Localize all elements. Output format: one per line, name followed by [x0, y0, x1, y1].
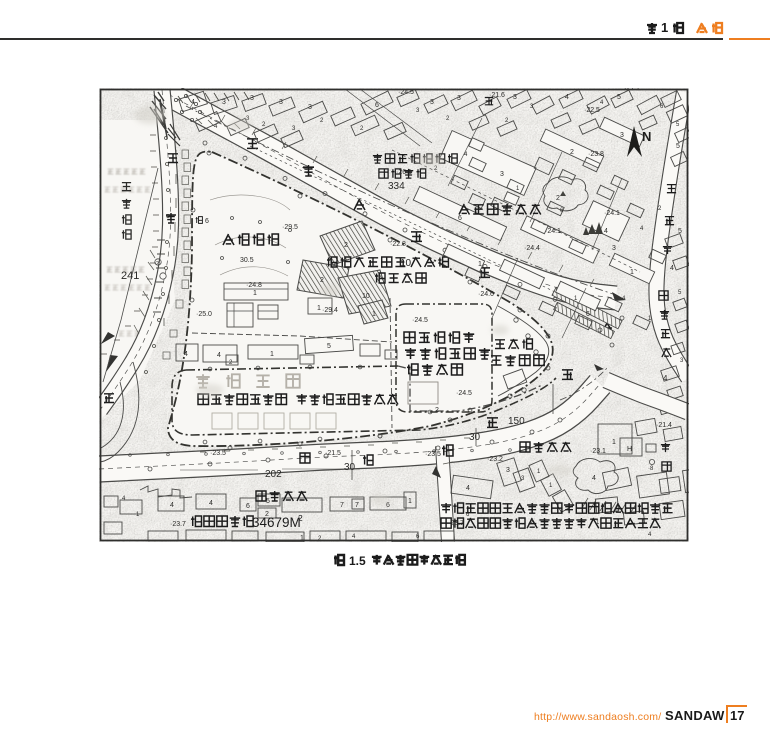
svg-text:H: H: [627, 446, 632, 453]
svg-text:3: 3: [513, 94, 517, 101]
svg-text:202: 202: [265, 469, 282, 480]
svg-text:5: 5: [617, 94, 621, 101]
svg-text:·24.5: ·24.5: [412, 317, 428, 324]
svg-text:7: 7: [340, 502, 344, 509]
svg-text:4: 4: [690, 482, 694, 488]
svg-text:3: 3: [308, 104, 312, 111]
svg-text:·23.8: ·23.8: [588, 151, 604, 158]
svg-text:4: 4: [663, 374, 668, 383]
svg-text:7: 7: [355, 502, 359, 509]
svg-text:6: 6: [458, 215, 462, 222]
svg-text:4: 4: [670, 265, 674, 272]
svg-text:3: 3: [500, 171, 504, 178]
svg-text:6: 6: [586, 311, 590, 318]
svg-text:1: 1: [372, 311, 376, 318]
svg-text:5: 5: [678, 228, 682, 235]
svg-text:·24.1: ·24.1: [604, 210, 620, 217]
svg-text:3: 3: [430, 99, 434, 106]
svg-text:334: 334: [388, 181, 405, 192]
svg-text:4: 4: [592, 475, 596, 482]
svg-text:·23.7: ·23.7: [448, 520, 464, 527]
svg-text:·23.1: ·23.1: [590, 448, 606, 455]
svg-text:·26.1: ·26.1: [396, 169, 412, 176]
svg-text:·25.0: ·25.0: [196, 311, 212, 318]
svg-text:·29.4: ·29.4: [322, 307, 338, 314]
svg-text:4: 4: [604, 228, 608, 235]
svg-text:·21.1: ·21.1: [624, 85, 640, 92]
svg-text:·24.6: ·24.6: [478, 291, 494, 298]
svg-text:241: 241: [121, 270, 139, 282]
svg-text:·23.5: ·23.5: [210, 450, 226, 457]
svg-text:2: 2: [298, 513, 303, 523]
svg-text:·24.1: ·24.1: [545, 228, 561, 235]
svg-text:2: 2: [344, 242, 348, 249]
svg-text:30.5: 30.5: [240, 257, 254, 264]
svg-text:1: 1: [612, 439, 616, 446]
svg-text:4: 4: [191, 99, 195, 106]
svg-text:1: 1: [317, 305, 321, 312]
svg-text:3: 3: [222, 99, 226, 106]
svg-text:·29.5: ·29.5: [282, 224, 298, 231]
svg-text:·21.5: ·21.5: [325, 450, 341, 457]
svg-text:5: 5: [327, 343, 331, 350]
svg-text:4: 4: [209, 500, 213, 507]
svg-text:3: 3: [620, 132, 624, 139]
svg-text:1: 1: [270, 351, 274, 358]
svg-text:·24.5: ·24.5: [456, 390, 472, 397]
svg-text:·23.2: ·23.2: [487, 456, 503, 463]
svg-text:2: 2: [435, 407, 439, 414]
svg-text:5: 5: [676, 143, 680, 150]
svg-text:3: 3: [612, 245, 616, 252]
svg-text:2: 2: [570, 149, 574, 156]
svg-text:4: 4: [184, 351, 188, 358]
svg-text:·24.4: ·24.4: [524, 245, 540, 252]
svg-text:·22.5: ·22.5: [584, 107, 600, 114]
svg-text:·21.4: ·21.4: [656, 422, 672, 429]
svg-text:1: 1: [630, 269, 634, 276]
svg-text:·21.6: ·21.6: [489, 92, 505, 99]
svg-text:2: 2: [556, 195, 560, 202]
svg-text:1: 1: [253, 290, 257, 297]
svg-text:2: 2: [320, 277, 324, 284]
svg-text:N: N: [642, 129, 651, 144]
svg-text:6: 6: [246, 503, 250, 510]
svg-text:3: 3: [279, 99, 283, 106]
svg-text:4: 4: [565, 94, 569, 101]
svg-text:30: 30: [469, 432, 481, 443]
svg-text:34679M: 34679M: [252, 515, 301, 530]
svg-text:·22.8: ·22.8: [390, 241, 406, 248]
svg-text:1: 1: [408, 498, 412, 505]
svg-text:2: 2: [156, 261, 159, 267]
svg-text:·23.5: ·23.5: [425, 451, 441, 458]
svg-text:1.5: 1.5: [349, 554, 366, 568]
svg-text:4: 4: [170, 502, 174, 509]
svg-text:10: 10: [400, 258, 412, 269]
svg-text:4: 4: [217, 352, 221, 359]
svg-text:3: 3: [506, 467, 510, 474]
svg-text:4: 4: [466, 485, 470, 492]
svg-text:·8: ·8: [648, 466, 654, 472]
svg-text:30: 30: [344, 462, 356, 473]
svg-text:10: 10: [362, 293, 370, 300]
svg-text:3: 3: [457, 95, 461, 102]
svg-text:1: 1: [478, 261, 482, 268]
svg-text:3: 3: [250, 95, 254, 102]
svg-text:150: 150: [508, 416, 525, 427]
svg-text:·23.7: ·23.7: [170, 521, 186, 528]
svg-text:6: 6: [205, 218, 209, 225]
